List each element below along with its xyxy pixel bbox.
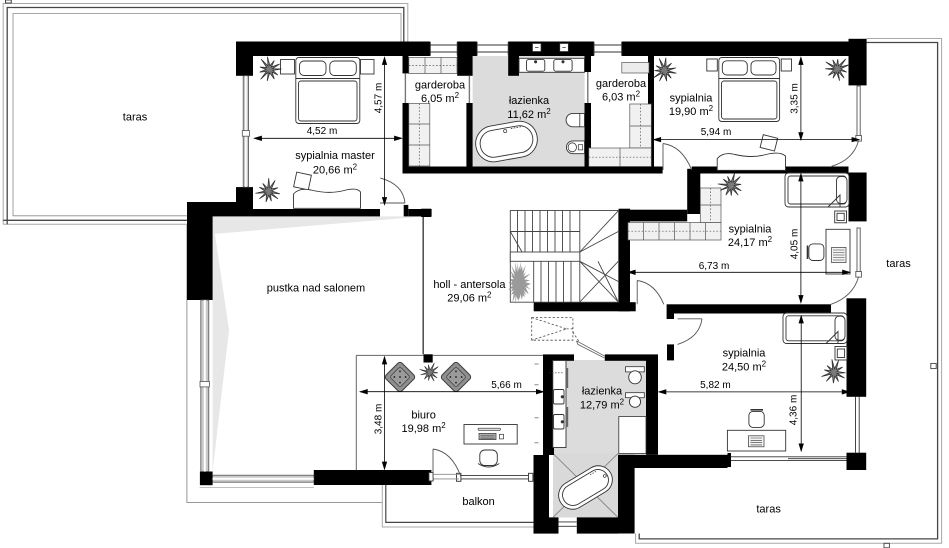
svg-text:6,05 m2: 6,05 m2 (421, 91, 460, 105)
svg-text:łazienka: łazienka (509, 95, 550, 107)
svg-text:biuro: biuro (411, 410, 435, 422)
svg-text:łazienka: łazienka (582, 386, 623, 398)
svg-text:6,73 m: 6,73 m (699, 261, 730, 272)
svg-text:taras: taras (886, 258, 911, 270)
svg-text:29,06 m2: 29,06 m2 (447, 291, 492, 305)
svg-text:24,17 m2: 24,17 m2 (728, 235, 773, 249)
svg-text:3,35 m: 3,35 m (789, 83, 800, 114)
svg-text:4,05 m: 4,05 m (789, 229, 800, 260)
svg-text:4,36 m: 4,36 m (789, 395, 800, 426)
svg-text:12,79 m2: 12,79 m2 (580, 398, 625, 412)
svg-text:balkon: balkon (462, 496, 494, 508)
svg-text:5,82 m: 5,82 m (700, 380, 731, 391)
svg-text:24,50 m2: 24,50 m2 (722, 360, 767, 374)
svg-text:garderoba: garderoba (596, 78, 647, 90)
svg-text:taras: taras (123, 112, 148, 124)
svg-text:4,52 m: 4,52 m (307, 126, 338, 137)
svg-text:20,66 m2: 20,66 m2 (313, 163, 358, 177)
svg-text:garderoba: garderoba (415, 80, 466, 92)
svg-text:sypialnia: sypialnia (670, 93, 714, 105)
svg-text:taras: taras (756, 504, 781, 516)
svg-text:19,90 m2: 19,90 m2 (669, 104, 714, 118)
svg-text:sypialnia: sypialnia (723, 348, 767, 360)
svg-text:5,66 m: 5,66 m (491, 380, 522, 391)
svg-text:3,48 m: 3,48 m (373, 404, 384, 435)
svg-text:4,57 m: 4,57 m (373, 83, 384, 114)
svg-text:19,98 m2: 19,98 m2 (401, 421, 446, 435)
svg-text:holl - antersola: holl - antersola (433, 279, 506, 291)
svg-text:11,62 m2: 11,62 m2 (507, 107, 551, 121)
svg-text:sypialnia master: sypialnia master (295, 150, 375, 162)
svg-text:pustka nad salonem: pustka nad salonem (267, 283, 365, 295)
svg-text:5,94 m: 5,94 m (701, 127, 732, 138)
svg-text:sypialnia: sypialnia (729, 224, 773, 236)
svg-text:6,03 m2: 6,03 m2 (602, 90, 641, 104)
